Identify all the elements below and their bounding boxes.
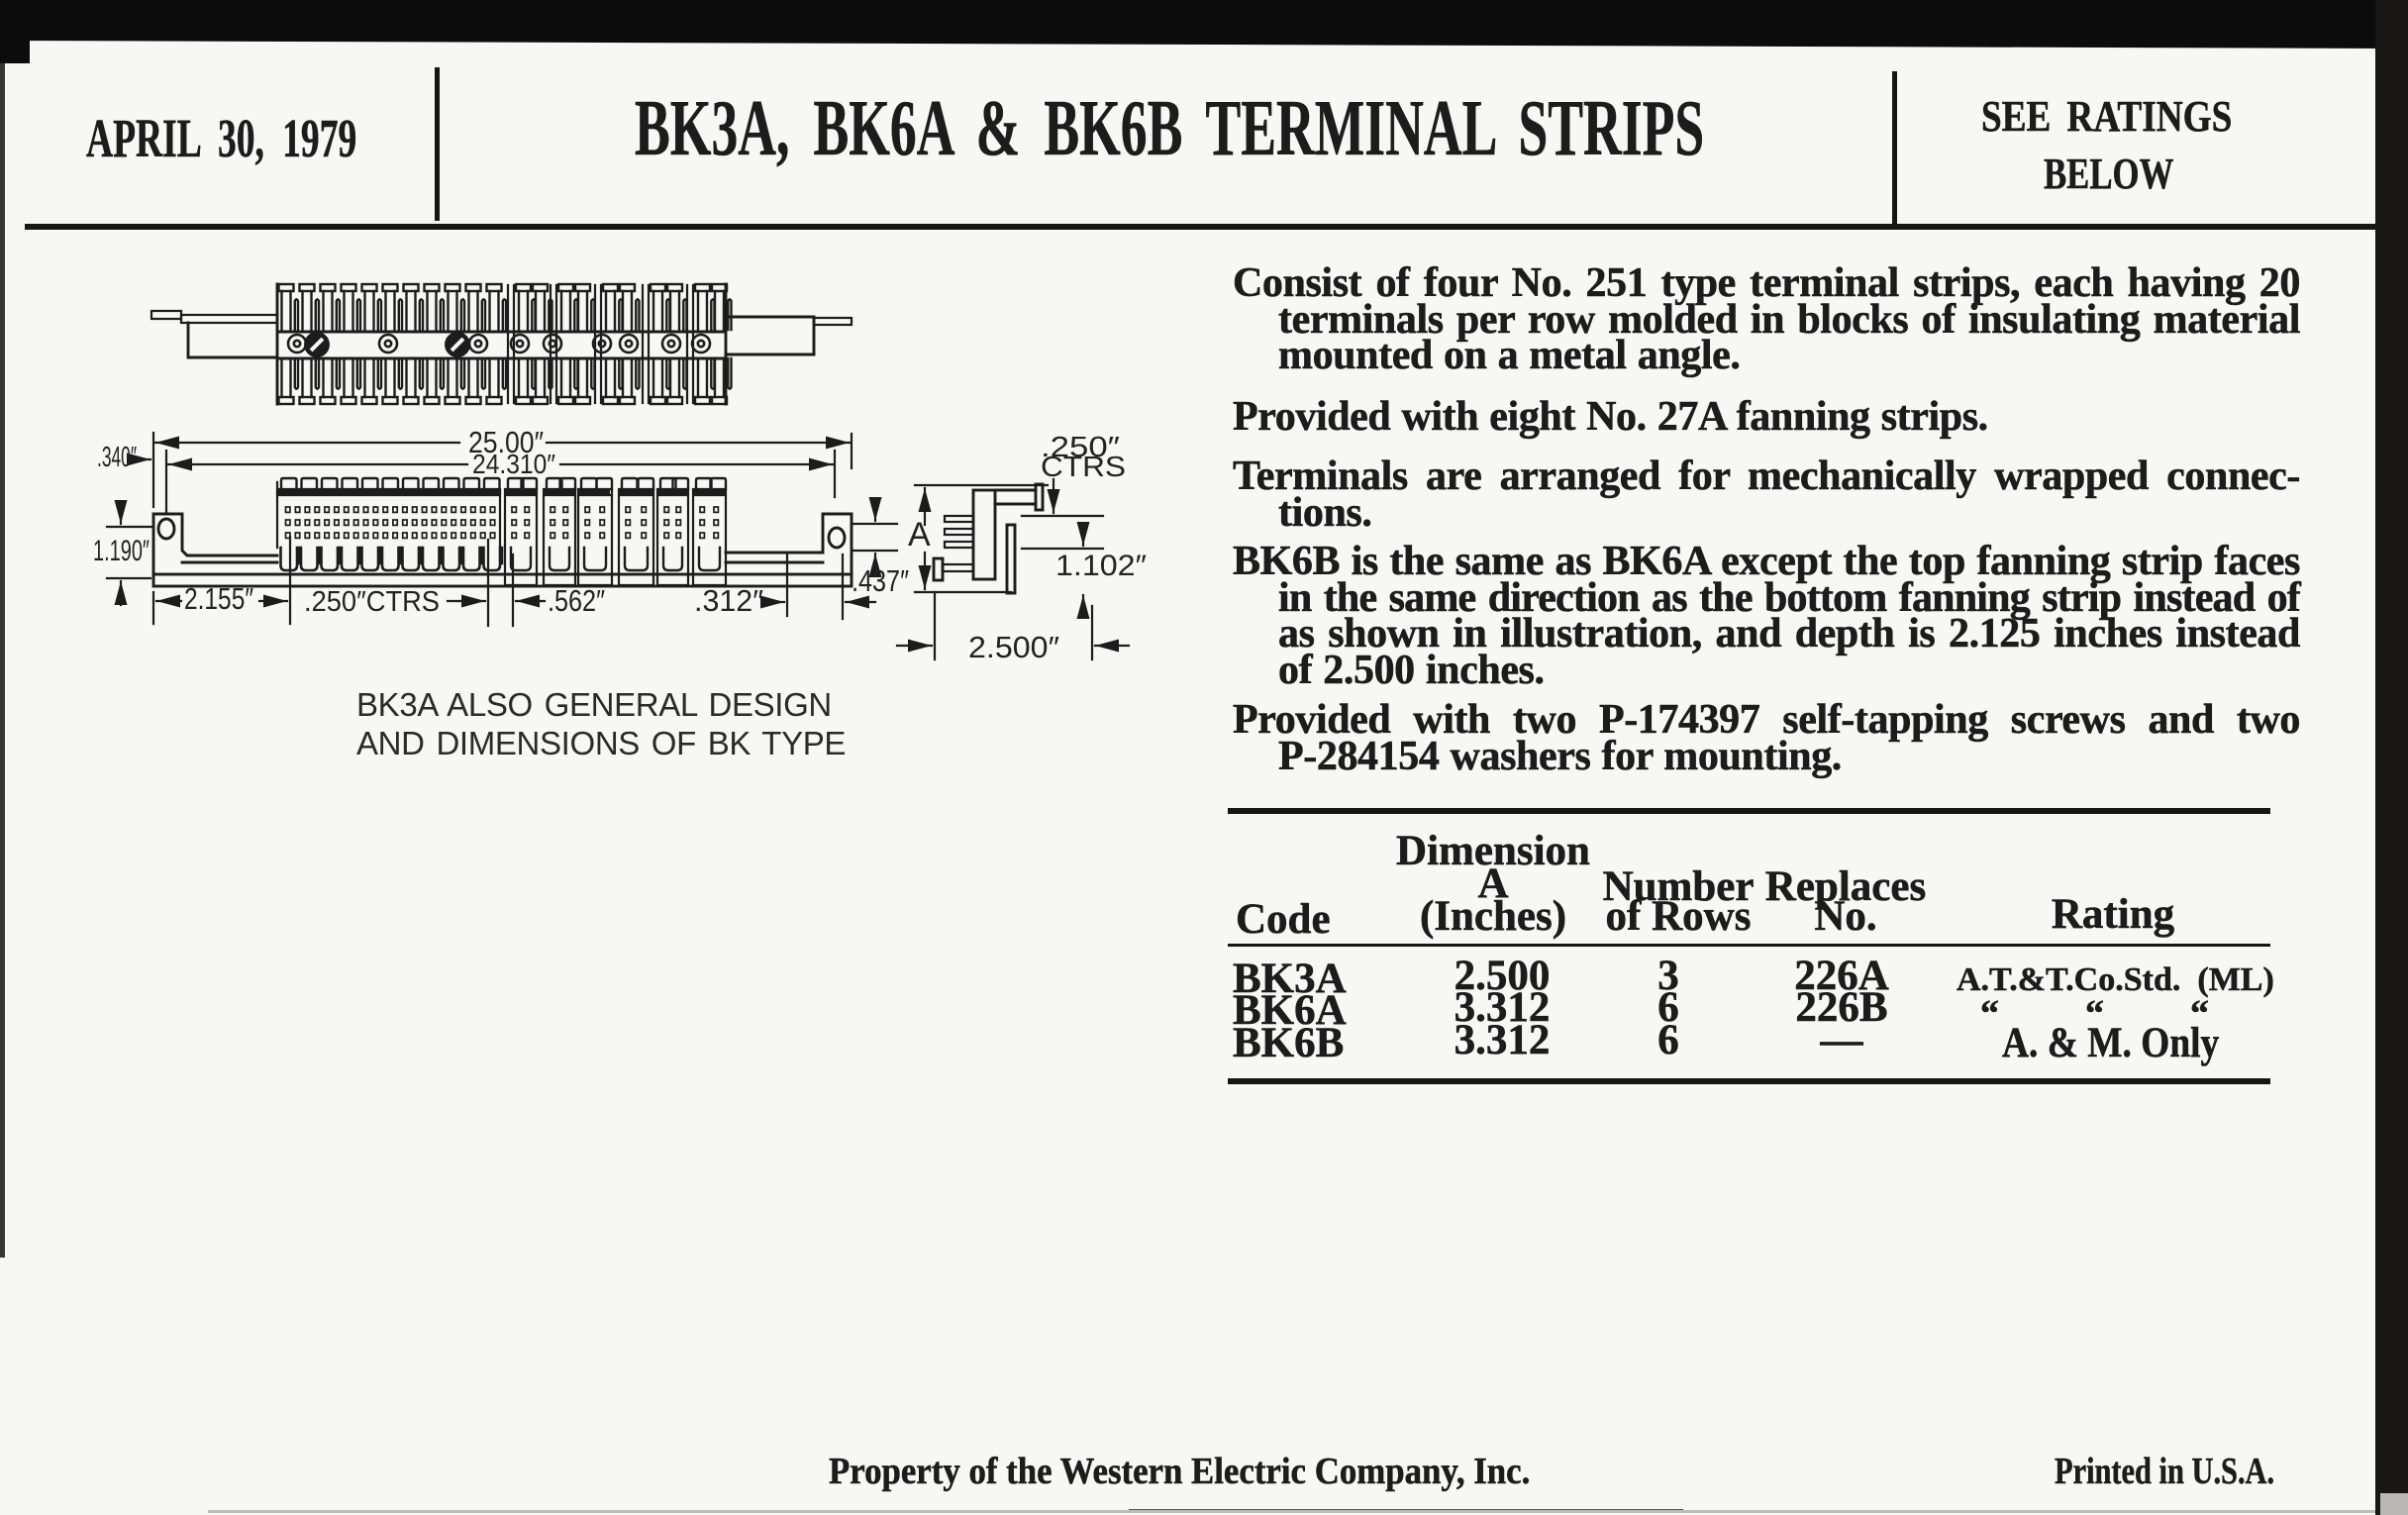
svg-text:A: A: [908, 516, 931, 554]
svg-text:2.155″: 2.155″: [184, 581, 253, 616]
svg-text:.340″: .340″: [97, 442, 137, 473]
svg-text:1.190″: 1.190″: [93, 535, 150, 567]
svg-text:.562″: .562″: [548, 583, 605, 618]
svg-text:2.500″: 2.500″: [968, 630, 1059, 664]
svg-text:CTRS: CTRS: [1041, 452, 1126, 483]
svg-text:.312″: .312″: [694, 583, 763, 618]
svg-text:.437″: .437″: [852, 563, 909, 598]
svg-text:1.102″: 1.102″: [1055, 550, 1147, 582]
svg-text:.250″CTRS: .250″CTRS: [304, 586, 440, 618]
svg-text:24.310″: 24.310″: [472, 449, 555, 479]
